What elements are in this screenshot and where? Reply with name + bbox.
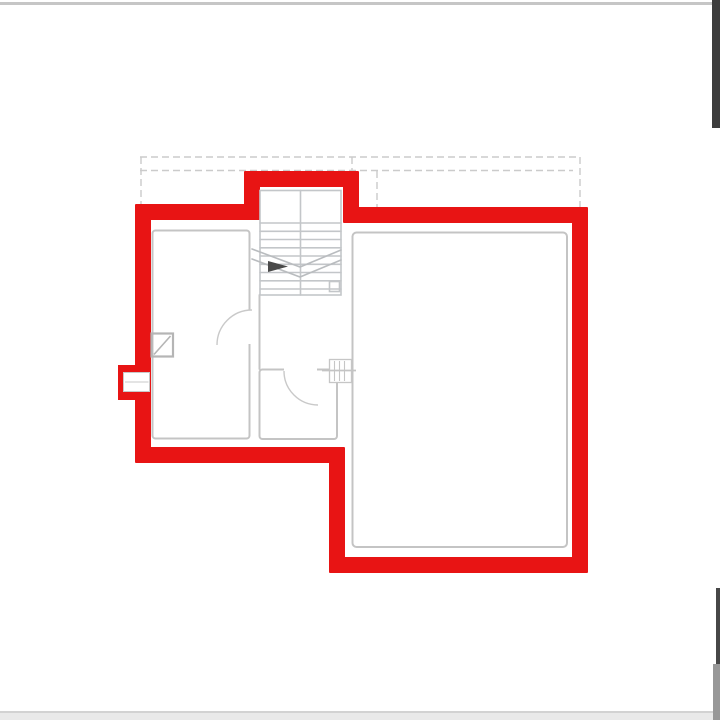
page-background bbox=[0, 0, 720, 720]
scan-artifact-right-thin-bar bbox=[716, 588, 720, 666]
scan-artifact-right-gray-bar bbox=[713, 664, 720, 720]
door-opening-left-room bbox=[247, 310, 255, 344]
scan-artifact-right-dark-bar bbox=[712, 0, 720, 128]
door-opening-lower-room bbox=[284, 366, 317, 374]
scan-artifact-bottom-edge bbox=[0, 711, 720, 713]
floor-plan-drawing bbox=[0, 0, 720, 720]
scan-artifact-top-line bbox=[0, 2, 720, 5]
floor-plan-canvas bbox=[0, 0, 720, 720]
